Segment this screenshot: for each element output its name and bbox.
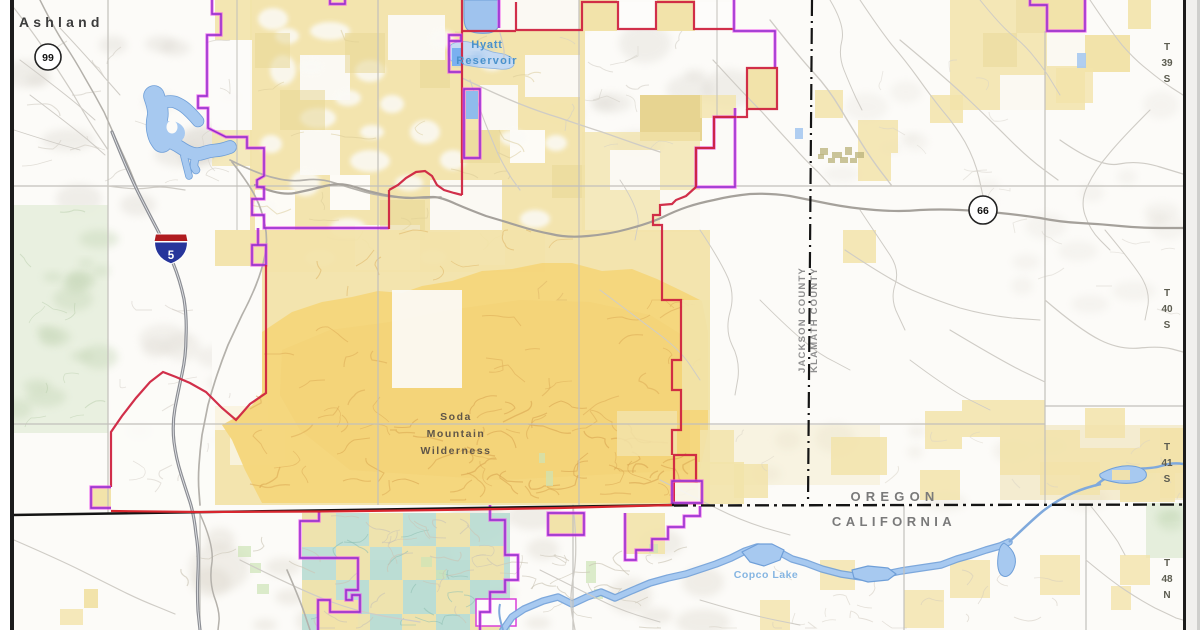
svg-text:CALIFORNIA: CALIFORNIA bbox=[832, 514, 956, 529]
svg-text:JACKSON COUNTY: JACKSON COUNTY bbox=[797, 267, 808, 373]
svg-text:66: 66 bbox=[977, 205, 989, 217]
svg-text:48: 48 bbox=[1161, 574, 1173, 585]
svg-text:99: 99 bbox=[42, 52, 54, 64]
svg-text:Soda: Soda bbox=[440, 411, 472, 423]
svg-text:S: S bbox=[1164, 320, 1171, 331]
svg-text:T: T bbox=[1164, 42, 1170, 53]
svg-text:KLAMATH COUNTY: KLAMATH COUNTY bbox=[809, 267, 820, 373]
svg-text:Ashland: Ashland bbox=[19, 14, 104, 30]
svg-text:41: 41 bbox=[1161, 458, 1173, 469]
svg-text:S: S bbox=[1164, 74, 1171, 85]
svg-text:Copco Lake: Copco Lake bbox=[734, 569, 799, 581]
svg-text:Hyatt: Hyatt bbox=[471, 39, 503, 51]
svg-text:N: N bbox=[1163, 590, 1170, 601]
svg-text:39: 39 bbox=[1161, 58, 1173, 69]
svg-text:Mountain: Mountain bbox=[427, 428, 486, 440]
svg-text:T: T bbox=[1164, 558, 1170, 569]
svg-text:OREGON: OREGON bbox=[851, 489, 940, 504]
svg-text:T: T bbox=[1164, 442, 1170, 453]
svg-text:5: 5 bbox=[168, 250, 175, 262]
svg-text:40: 40 bbox=[1161, 304, 1173, 315]
svg-text:T: T bbox=[1164, 288, 1170, 299]
svg-text:Reservoir: Reservoir bbox=[456, 55, 518, 67]
svg-text:S: S bbox=[1164, 474, 1171, 485]
svg-text:Wilderness: Wilderness bbox=[421, 445, 492, 457]
